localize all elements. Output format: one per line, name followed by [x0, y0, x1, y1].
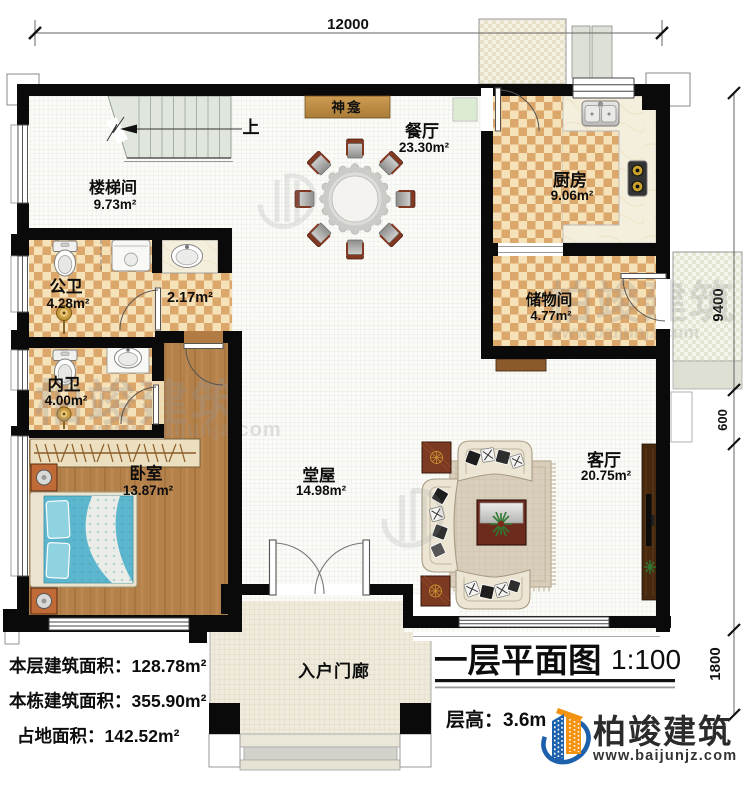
svg-text:厨房: 厨房 — [553, 170, 587, 190]
svg-text:12000: 12000 — [327, 16, 369, 33]
svg-text:600: 600 — [715, 409, 730, 431]
svg-text:客厅: 客厅 — [586, 450, 621, 470]
svg-text:上: 上 — [243, 118, 260, 137]
svg-text:4.77m²: 4.77m² — [530, 308, 572, 323]
svg-text:卧室: 卧室 — [130, 463, 163, 483]
svg-text:1800: 1800 — [707, 647, 724, 680]
svg-text:本层建筑面积：128.78m²: 本层建筑面积：128.78m² — [9, 656, 207, 676]
svg-text:www.baijunjz.com: www.baijunjz.com — [592, 748, 737, 764]
svg-text:9.73m²: 9.73m² — [94, 197, 137, 212]
svg-text:占地面积：142.52m²: 占地面积：142.52m² — [17, 726, 180, 746]
svg-text:一层平面图: 一层平面图 — [434, 643, 602, 680]
svg-text:20.75m²: 20.75m² — [581, 468, 632, 483]
svg-text:4.00m²: 4.00m² — [45, 393, 88, 408]
svg-text:餐厅: 餐厅 — [405, 121, 439, 141]
svg-text:神龛: 神龛 — [332, 99, 363, 115]
svg-text:入户门廊: 入户门廊 — [298, 661, 370, 681]
svg-text:内卫: 内卫 — [48, 374, 81, 394]
svg-text:4.28m²: 4.28m² — [47, 296, 90, 311]
svg-text:楼梯间: 楼梯间 — [89, 178, 137, 197]
svg-text:储物间: 储物间 — [525, 290, 573, 309]
svg-text:13.87m²: 13.87m² — [123, 483, 174, 498]
svg-text:www.baijunjz.com: www.baijunjz.com — [547, 322, 699, 342]
svg-text:14.98m²: 14.98m² — [296, 483, 347, 498]
svg-text:堂屋: 堂屋 — [303, 465, 336, 485]
svg-text:本栋建筑面积：355.90m²: 本栋建筑面积：355.90m² — [9, 691, 207, 711]
svg-text:层高：3.6m: 层高：3.6m — [446, 708, 546, 731]
svg-text:柏竣建筑: 柏竣建筑 — [548, 277, 736, 328]
svg-text:2.17m²: 2.17m² — [167, 290, 213, 306]
svg-text:23.30m²: 23.30m² — [399, 140, 450, 155]
svg-text:公卫: 公卫 — [50, 277, 83, 296]
svg-text:9.06m²: 9.06m² — [551, 188, 594, 203]
svg-text:柏竣建筑: 柏竣建筑 — [593, 713, 733, 750]
svg-text:1:100: 1:100 — [611, 644, 681, 675]
